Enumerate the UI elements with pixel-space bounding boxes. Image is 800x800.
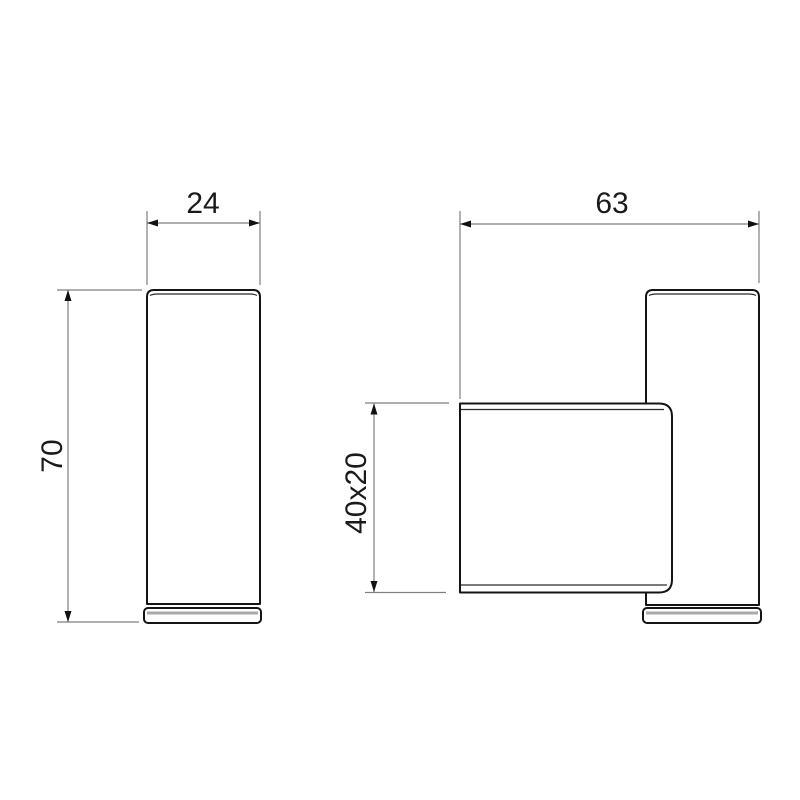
dim-front-profile: 40x20 <box>340 403 449 593</box>
arrowhead-bottom <box>371 581 378 592</box>
arrowhead-left <box>460 221 471 228</box>
dim-side-height-label: 70 <box>36 439 69 472</box>
dim-side-width: 24 <box>147 187 260 285</box>
technical-drawing-canvas: 24 70 <box>0 0 800 800</box>
side-view: 24 70 <box>36 187 261 623</box>
front-view: 63 40x20 <box>340 187 761 623</box>
arrowhead-top <box>65 290 72 301</box>
arrowhead-top <box>371 404 378 415</box>
front-view-base-cap <box>643 608 761 623</box>
technical-drawing-page: 24 70 <box>0 0 800 800</box>
arrowhead-bottom <box>65 611 72 622</box>
dim-side-width-label: 24 <box>186 187 219 220</box>
dim-side-height: 70 <box>36 290 142 622</box>
side-view-body <box>147 290 260 604</box>
arrowhead-right <box>249 220 260 227</box>
arrowhead-left <box>147 220 158 227</box>
side-view-base-cap <box>144 608 261 623</box>
dim-front-width-label: 63 <box>595 187 628 220</box>
arrowhead-right <box>748 221 759 228</box>
front-view-hook-arm <box>460 404 672 593</box>
dim-front-profile-label: 40x20 <box>340 452 373 534</box>
